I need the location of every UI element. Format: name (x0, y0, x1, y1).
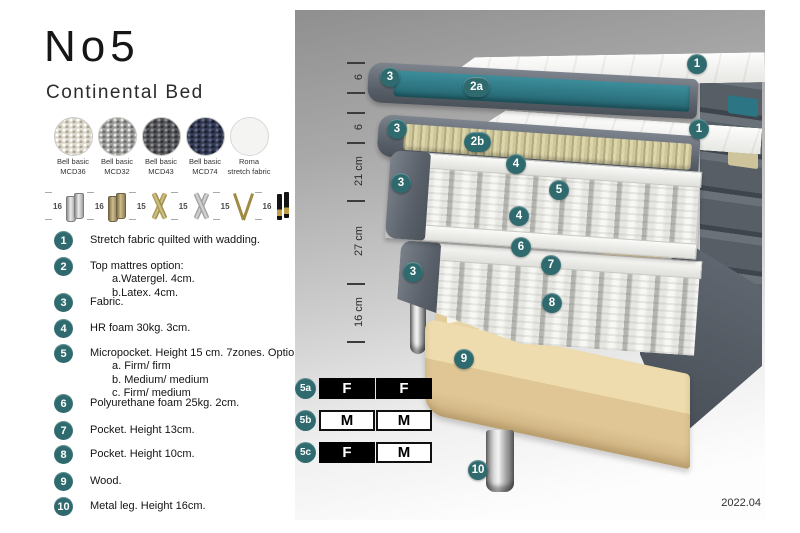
feature-item-5: 5 Micropocket. Height 15 cm. 7zones. Opt… (54, 344, 312, 401)
firmness-cell: M (376, 410, 432, 431)
feature-item-8: 8 Pocket. Height 10cm. (54, 445, 312, 464)
callout-3: 3 (391, 173, 411, 193)
leg-option: 15 (179, 190, 212, 222)
leg-separator (254, 189, 263, 223)
feature-number-badge: 9 (54, 472, 73, 491)
leg-separator (44, 189, 53, 223)
page-title: No5 (44, 22, 140, 72)
feature-number-badge: 2 (54, 257, 73, 276)
fabric-name: Bell basic (189, 157, 221, 166)
feature-item-4: 4 HR foam 30kg. 3cm. (54, 319, 312, 338)
feature-item-1: 1 Stretch fabric quilted with wadding. (54, 231, 312, 250)
callout-10: 10 (468, 460, 488, 480)
leg-hairpin-gold-icon (232, 190, 254, 222)
firmness-cell: M (319, 410, 375, 431)
bed-leg-back (410, 302, 426, 354)
leg-black-gold-icon (273, 190, 295, 222)
fabric-code: MCD43 (148, 167, 173, 176)
leg-separator (170, 189, 179, 223)
feature-item-3: 3 Fabric. (54, 293, 312, 312)
feature-text: Fabric. (90, 296, 312, 309)
callout-3: 3 (380, 67, 400, 87)
feature-number-badge: 4 (54, 319, 73, 338)
feature-number-badge: 7 (54, 421, 73, 440)
callout-2a: 2a (463, 77, 490, 97)
fabric-swatches: Bell basic MCD36 Bell basic MCD32 Bell b… (51, 117, 271, 176)
watergel-end-cap (728, 95, 758, 117)
feature-item-6: 6 Polyurethane foam 25kg. 2cm. (54, 394, 312, 413)
firmness-cell: F (376, 378, 432, 399)
fabric-name: Roma (239, 157, 259, 166)
fabric-swatch-image (98, 117, 137, 156)
feature-item-9: 9 Wood. (54, 472, 312, 491)
feature-subtext: a. Firm/ firm (90, 360, 312, 373)
firmness-cell: M (376, 442, 432, 463)
leg-cross-gold-icon (148, 190, 170, 222)
feature-number-badge: 5 (54, 344, 73, 363)
firmness-badge: 5a (295, 378, 316, 399)
fabric-code: MCD74 (192, 167, 217, 176)
measurement-label: 21 cm (353, 149, 367, 193)
fabric-name: Bell basic (101, 157, 133, 166)
callout-7: 7 (541, 255, 561, 275)
callout-1: 1 (689, 119, 709, 139)
leg-cross-silver-icon (190, 190, 212, 222)
callout-2b: 2b (464, 132, 491, 152)
feature-item-10: 10 Metal leg. Height 16cm. (54, 497, 312, 516)
fabric-end-cap (385, 150, 431, 241)
feature-text: HR foam 30kg. 3cm. (90, 322, 312, 335)
leg-cylinder-brass-icon (106, 190, 128, 222)
leg-height: 15 (137, 202, 146, 211)
firmness-row-5a: 5a F F (295, 378, 433, 399)
feature-text: Polyurethane foam 25kg. 2cm. (90, 397, 312, 410)
callout-4: 4 (509, 206, 529, 226)
firmness-cell: F (319, 442, 375, 463)
firmness-row-5b: 5b M M (295, 410, 433, 431)
feature-text: Top mattres option: (90, 260, 312, 273)
fabric-swatch-image (54, 117, 93, 156)
fabric-swatch: Bell basic MCD74 (183, 117, 227, 176)
fabric-swatch-image (230, 117, 269, 156)
fabric-swatch: Bell basic MCD43 (139, 117, 183, 176)
page-subtitle: Continental Bed (46, 82, 204, 104)
leg-options: 16 16 15 15 15 16 (44, 187, 304, 225)
callout-3: 3 (403, 262, 423, 282)
feature-number-badge: 6 (54, 394, 73, 413)
feature-number-badge: 3 (54, 293, 73, 312)
leg-option: 16 (263, 190, 296, 222)
fabric-swatch: Bell basic MCD36 (51, 117, 95, 176)
callout-1: 1 (687, 54, 707, 74)
fabric-name: Bell basic (145, 157, 177, 166)
fabric-code: stretch fabric (228, 167, 271, 176)
firmness-cell: F (319, 378, 375, 399)
feature-subtext: a.Watergel. 4cm. (90, 273, 312, 286)
callout-6: 6 (511, 237, 531, 257)
firmness-row-5c: 5c F M (295, 442, 433, 463)
feature-number-badge: 8 (54, 445, 73, 464)
scale-tick (347, 200, 365, 202)
leg-option: 16 (95, 190, 128, 222)
leg-separator (86, 189, 95, 223)
leg-separator (212, 189, 221, 223)
fabric-code: MCD32 (104, 167, 129, 176)
callout-8: 8 (542, 293, 562, 313)
fabric-swatch-image (186, 117, 225, 156)
feature-text: Pocket. Height 10cm. (90, 448, 312, 461)
fabric-swatch: Roma stretch fabric (227, 117, 271, 176)
fabric-swatch-image (142, 117, 181, 156)
feature-number-badge: 10 (54, 497, 73, 516)
leg-separator (128, 189, 137, 223)
feature-number-badge: 1 (54, 231, 73, 250)
measurement-label: 6 (353, 55, 367, 99)
callout-3: 3 (387, 119, 407, 139)
leg-option: 16 (53, 190, 86, 222)
leg-height: 15 (179, 202, 188, 211)
callout-9: 9 (454, 349, 474, 369)
leg-option: 15 (137, 190, 170, 222)
leg-option: 15 (221, 190, 254, 222)
measurement-label: 16 cm (353, 290, 367, 334)
firmness-badge: 5b (295, 410, 316, 431)
feature-text: Micropocket. Height 15 cm. 7zones. Optio… (90, 347, 312, 360)
feature-text: Metal leg. Height 16cm. (90, 500, 312, 513)
leg-height: 16 (263, 202, 272, 211)
fabric-code: MCD36 (60, 167, 85, 176)
version-label: 2022.04 (713, 497, 761, 509)
diagram-panel: 6 6 21 cm 27 cm 16 cm 1 3 2a 1 3 2b 4 3 (295, 10, 765, 520)
fabric-name: Bell basic (57, 157, 89, 166)
fabric-swatch: Bell basic MCD32 (95, 117, 139, 176)
firmness-badge: 5c (295, 442, 316, 463)
callout-4: 4 (506, 154, 526, 174)
measurement-label: 27 cm (353, 219, 367, 263)
feature-text: Wood. (90, 475, 312, 488)
feature-subtext: b. Medium/ medium (90, 374, 312, 387)
feature-text: Pocket. Height 13cm. (90, 424, 312, 437)
scale-tick (347, 283, 365, 285)
leg-height: 15 (221, 202, 230, 211)
callout-5: 5 (549, 180, 569, 200)
watergel-core (393, 70, 690, 111)
leg-cylinder-silver-icon (64, 190, 86, 222)
leg-height: 16 (95, 202, 104, 211)
feature-text: Stretch fabric quilted with wadding. (90, 234, 312, 247)
measurement-label: 6 (353, 105, 367, 149)
feature-item-7: 7 Pocket. Height 13cm. (54, 421, 312, 440)
bed-leg-front (486, 430, 514, 492)
product-sheet: { "page": { "title": "No5", "subtitle": … (0, 0, 800, 533)
scale-tick (347, 341, 365, 343)
leg-height: 16 (53, 202, 62, 211)
